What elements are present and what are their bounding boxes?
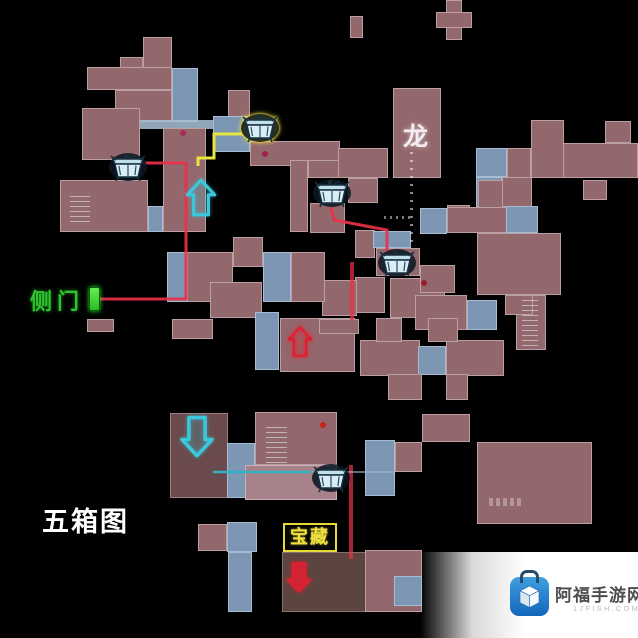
bag-handle-icon: [520, 570, 539, 583]
watermark-site-name: 阿福手游网: [555, 581, 638, 606]
treasure-chest-icon: [376, 246, 418, 280]
treasure-chest-icon: [107, 150, 149, 184]
side-door-label: 侧门: [30, 284, 84, 316]
treasure-chest-icon: [311, 176, 353, 210]
stairs-up-cyan-arrow-icon: [185, 178, 217, 218]
treasure-chest-icon: [310, 461, 352, 495]
watermark: 阿福手游网 17FISH.COM: [420, 552, 638, 638]
game-map-screenshot: 龙 侧门 五箱图 宝藏 阿福手游网 17FISH.COM: [0, 0, 638, 638]
watermark-logo-icon: [510, 577, 549, 616]
treasure-label: 宝藏: [290, 527, 330, 547]
map-title: 五箱图: [42, 500, 129, 539]
stairs-up-red-arrow-icon: [287, 324, 313, 360]
stairs-down-red-arrow-icon: [286, 559, 312, 595]
treasure-chest-icon-highlighted: [239, 111, 281, 145]
dragon-room-label: 龙: [403, 117, 428, 153]
watermark-site-domain: 17FISH.COM: [573, 604, 638, 613]
stairs-down-cyan-arrow-icon: [179, 414, 215, 458]
cube-icon: [519, 585, 540, 609]
treasure-label-box: 宝藏: [283, 523, 337, 552]
side-door-marker: [89, 287, 100, 311]
